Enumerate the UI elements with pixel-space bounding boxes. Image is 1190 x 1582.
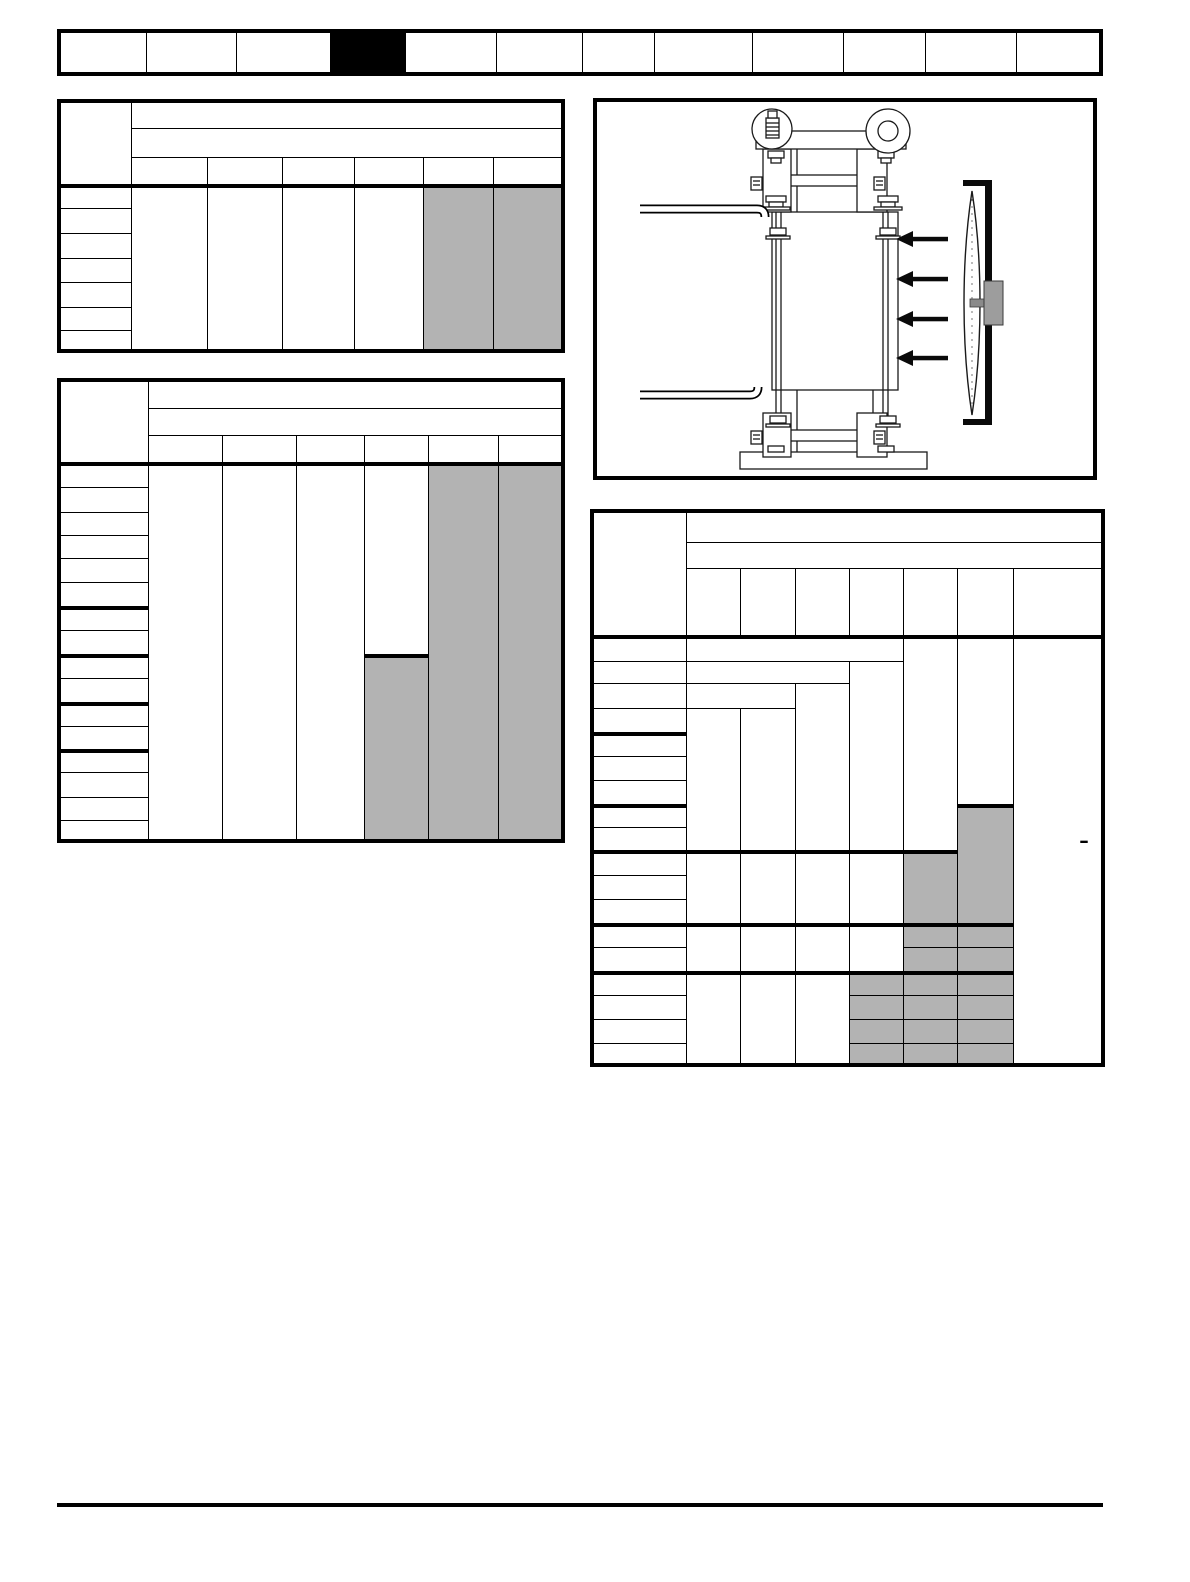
spec-table-right-frame <box>590 509 1105 1067</box>
footer-rule <box>57 1503 1103 1507</box>
spec-table-left-frame <box>57 378 565 843</box>
diagram-frame <box>593 98 1097 480</box>
spec-table-top-left-frame <box>57 99 565 353</box>
chapter-tab-bar-frame <box>57 29 1103 76</box>
manual-page: – <box>0 0 1190 1582</box>
